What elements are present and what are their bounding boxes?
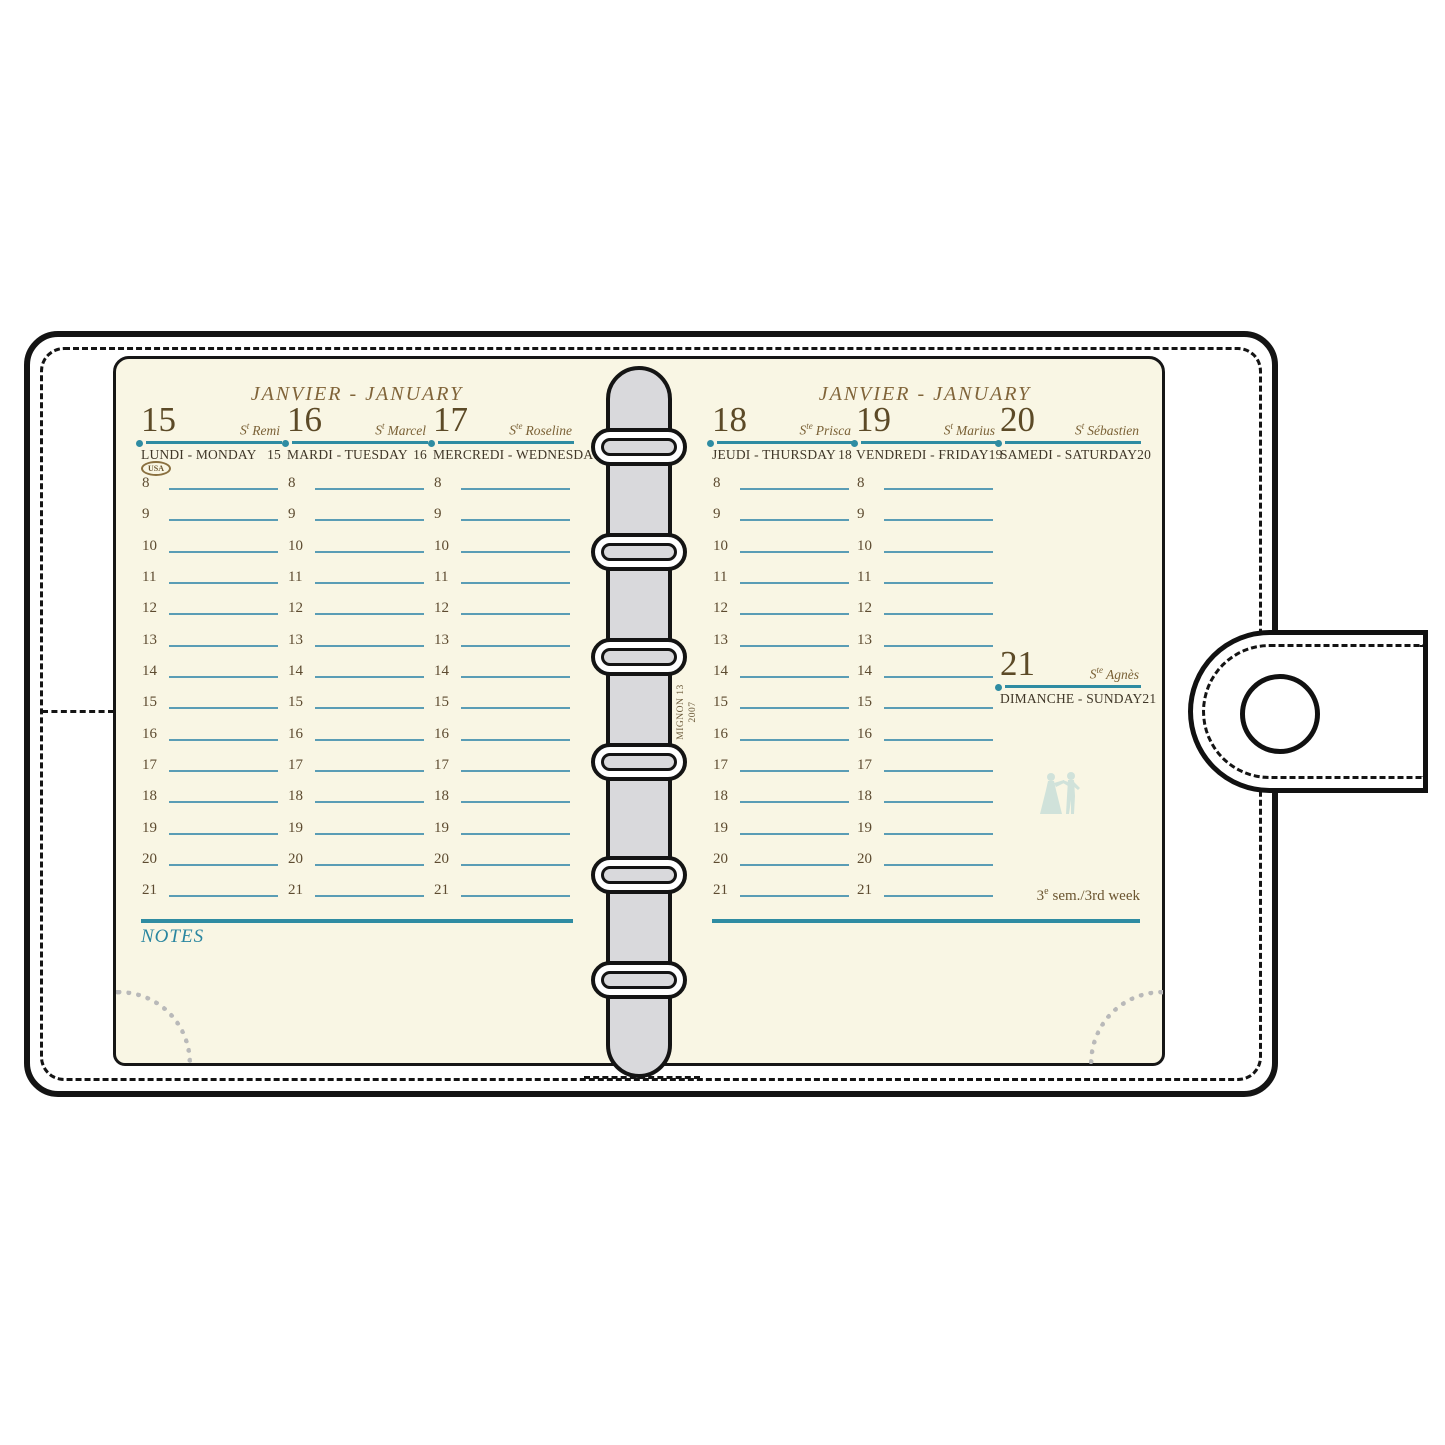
hour-line — [461, 551, 570, 553]
hour-row: 18 — [141, 788, 281, 805]
hour-line — [884, 895, 993, 897]
hour-label: 10 — [288, 538, 303, 555]
hour-row: 13 — [287, 632, 427, 649]
day-rule — [995, 683, 1141, 690]
hour-label: 17 — [288, 757, 303, 774]
hour-row: 11 — [287, 569, 427, 586]
hour-row: 18 — [433, 788, 573, 805]
hour-label: 15 — [713, 694, 728, 711]
saint-text: Marcel — [388, 423, 426, 438]
hour-line — [884, 551, 993, 553]
saint-prefix: S — [1075, 423, 1082, 438]
hour-line — [740, 676, 849, 678]
hour-label: 11 — [713, 569, 727, 586]
hour-label: 20 — [142, 851, 157, 868]
hour-row: 21 — [712, 882, 852, 899]
hour-row: 13 — [712, 632, 852, 649]
hour-line — [461, 613, 570, 615]
hour-label: 20 — [288, 851, 303, 868]
hour-line — [461, 488, 570, 490]
day-number: 20 — [1000, 402, 1035, 437]
hour-line — [169, 801, 278, 803]
saint-text: Roseline — [526, 423, 573, 438]
hour-row: 20 — [856, 851, 996, 868]
hour-label: 11 — [857, 569, 871, 586]
hour-row: 14 — [856, 663, 996, 680]
hour-label: 20 — [713, 851, 728, 868]
weekday-label: DIMANCHE - SUNDAY — [1000, 691, 1142, 707]
hour-label: 14 — [857, 663, 872, 680]
hour-line — [461, 770, 570, 772]
hour-row: 15 — [287, 694, 427, 711]
hour-row: 10 — [856, 538, 996, 555]
hour-line — [461, 519, 570, 521]
saint-name: SteRoseline — [509, 421, 572, 439]
hour-line — [461, 582, 570, 584]
hour-row: 10 — [712, 538, 852, 555]
saint-prefix: S — [240, 423, 247, 438]
hour-line — [315, 739, 424, 741]
hour-row: 17 — [712, 757, 852, 774]
cover-stitching-over-spine — [584, 1076, 700, 1079]
day-number: 15 — [141, 402, 176, 437]
hour-label: 21 — [857, 882, 872, 899]
hour-row: 19 — [856, 820, 996, 837]
hour-row: 9 — [856, 506, 996, 523]
hour-line — [315, 645, 424, 647]
saint-sup: t — [1082, 421, 1085, 431]
day-rule-dot — [428, 440, 435, 447]
day-column-19: 19StMariusVENDREDI - FRIDAY19 — [856, 406, 996, 486]
hour-row: 15 — [141, 694, 281, 711]
weekday-label-row: JEUDI - THURSDAY18 — [712, 447, 852, 463]
hour-row: 16 — [287, 726, 427, 743]
hour-label: 9 — [434, 506, 442, 523]
hour-label: 17 — [142, 757, 157, 774]
hour-row: 13 — [856, 632, 996, 649]
hour-label: 10 — [434, 538, 449, 555]
hour-label: 16 — [713, 726, 728, 743]
hour-line — [169, 833, 278, 835]
hour-label: 17 — [713, 757, 728, 774]
hour-line — [169, 551, 278, 553]
saint-name: SteAgnès — [1090, 665, 1139, 683]
hour-label: 19 — [857, 820, 872, 837]
weekday-date: 15 — [267, 447, 281, 463]
hour-label: 14 — [142, 663, 157, 680]
hour-line — [740, 551, 849, 553]
hour-row: 21 — [856, 882, 996, 899]
hour-label: 15 — [857, 694, 872, 711]
hour-label: 10 — [857, 538, 872, 555]
hour-row: 21 — [287, 882, 427, 899]
hour-label: 15 — [288, 694, 303, 711]
hour-row: 15 — [712, 694, 852, 711]
hour-label: 13 — [142, 632, 157, 649]
day-rule-dot — [282, 440, 289, 447]
hour-row: 9 — [433, 506, 573, 523]
saint-name: StMarius — [944, 421, 995, 439]
hour-line — [169, 488, 278, 490]
hour-line — [461, 707, 570, 709]
hour-line — [740, 864, 849, 866]
saint-text: Agnès — [1106, 667, 1139, 682]
hour-line — [461, 864, 570, 866]
saint-name: StSébastien — [1075, 421, 1139, 439]
weekday-label-row: MARDI - TUESDAY16 — [287, 447, 427, 463]
weekday-label-row: VENDREDI - FRIDAY19 — [856, 447, 996, 463]
hour-label: 12 — [857, 600, 872, 617]
hour-row: 21 — [141, 882, 281, 899]
hour-line — [461, 895, 570, 897]
hour-row: 8 — [856, 475, 996, 492]
hour-row: 11 — [712, 569, 852, 586]
weekday-label-row: SAMEDI - SATURDAY20 — [1000, 447, 1140, 463]
hour-label: 12 — [434, 600, 449, 617]
hour-row: 17 — [287, 757, 427, 774]
hour-label: 13 — [288, 632, 303, 649]
weekday-label: VENDREDI - FRIDAY — [856, 447, 989, 463]
day-column-18: 18StePriscaJEUDI - THURSDAY18 — [712, 406, 852, 486]
hour-line — [740, 770, 849, 772]
day-column-17: 17SteRoselineMERCREDI - WEDNESDAY17 — [433, 406, 573, 486]
hour-line — [740, 801, 849, 803]
hour-line — [740, 488, 849, 490]
saint-sup: t — [950, 421, 953, 431]
hour-label: 18 — [288, 788, 303, 805]
hour-row: 20 — [141, 851, 281, 868]
saint-sup: t — [247, 421, 250, 431]
hour-label: 14 — [434, 663, 449, 680]
hour-label: 18 — [857, 788, 872, 805]
hour-label: 16 — [857, 726, 872, 743]
hour-row: 17 — [856, 757, 996, 774]
couple-watermark-icon — [1038, 770, 1090, 820]
hour-row: 16 — [433, 726, 573, 743]
month-title-left: JANVIER - JANUARY — [141, 383, 573, 406]
hour-label: 11 — [288, 569, 302, 586]
hour-line — [740, 519, 849, 521]
weekday-date: 20 — [1137, 447, 1151, 463]
day-rule-line — [438, 441, 574, 444]
hour-row: 15 — [856, 694, 996, 711]
hour-line — [740, 645, 849, 647]
saint-sup: te — [1097, 665, 1104, 675]
hour-row: 10 — [433, 538, 573, 555]
hour-row: 14 — [141, 663, 281, 680]
binder-ring-slot — [601, 648, 677, 666]
saint-text: Sébastien — [1087, 423, 1139, 438]
hour-row: 16 — [141, 726, 281, 743]
hour-label: 14 — [713, 663, 728, 680]
hour-line — [315, 770, 424, 772]
hour-line — [315, 551, 424, 553]
day-rule — [136, 439, 282, 446]
hour-row: 12 — [141, 600, 281, 617]
saint-name: StMarcel — [375, 421, 426, 439]
snap-button — [1240, 674, 1320, 754]
hour-label: 18 — [142, 788, 157, 805]
hour-line — [884, 707, 993, 709]
hour-line — [315, 582, 424, 584]
saint-prefix: S — [509, 423, 516, 438]
hour-row: 8 — [433, 475, 573, 492]
binder-ring-slot — [601, 543, 677, 561]
hour-row: 9 — [712, 506, 852, 523]
hour-row: 18 — [856, 788, 996, 805]
day-rule-line — [717, 441, 853, 444]
day-number: 19 — [856, 402, 891, 437]
hour-row: 13 — [141, 632, 281, 649]
hour-label: 19 — [713, 820, 728, 837]
hour-row: 20 — [712, 851, 852, 868]
hour-row: 8 — [141, 475, 281, 492]
hour-label: 9 — [288, 506, 296, 523]
hour-label: 8 — [434, 475, 442, 492]
hour-label: 8 — [857, 475, 865, 492]
hour-row: 20 — [433, 851, 573, 868]
hour-line — [884, 739, 993, 741]
binder-ring-slot — [601, 753, 677, 771]
hour-line — [315, 613, 424, 615]
day-number: 17 — [433, 402, 468, 437]
hour-line — [315, 707, 424, 709]
hour-line — [169, 864, 278, 866]
day-rule-line — [1005, 685, 1141, 688]
page-bottom-rule-right — [712, 919, 1140, 923]
hour-label: 19 — [288, 820, 303, 837]
day-rule — [995, 439, 1141, 446]
hour-row: 14 — [712, 663, 852, 680]
hour-label: 9 — [857, 506, 865, 523]
day-rule — [282, 439, 428, 446]
saint-text: Prisca — [816, 423, 851, 438]
hour-line — [169, 519, 278, 521]
saint-sup: te — [516, 421, 523, 431]
hour-row: 21 — [433, 882, 573, 899]
hour-line — [884, 833, 993, 835]
hour-row: 12 — [712, 600, 852, 617]
weekday-label: JEUDI - THURSDAY — [712, 447, 836, 463]
corner-pocket-stitch-left — [116, 986, 194, 1064]
hour-line — [884, 582, 993, 584]
spine-edition-label: MIGNON 13 2007 — [676, 684, 700, 739]
hour-row: 19 — [141, 820, 281, 837]
hour-line — [740, 739, 849, 741]
hour-line — [461, 833, 570, 835]
day-column-21: 21SteAgnèsDIMANCHE - SUNDAY21 — [1000, 650, 1140, 730]
hour-row: 17 — [433, 757, 573, 774]
hour-label: 17 — [857, 757, 872, 774]
weekday-label-row: MERCREDI - WEDNESDAY17 — [433, 447, 573, 463]
hour-line — [169, 582, 278, 584]
hour-row: 20 — [287, 851, 427, 868]
hour-line — [315, 833, 424, 835]
hour-line — [884, 801, 993, 803]
hour-line — [740, 895, 849, 897]
hour-row: 11 — [856, 569, 996, 586]
hour-row: 12 — [287, 600, 427, 617]
hour-label: 19 — [434, 820, 449, 837]
day-number: 18 — [712, 402, 747, 437]
hour-row: 8 — [712, 475, 852, 492]
saint-name: StRemi — [240, 421, 280, 439]
hour-label: 10 — [142, 538, 157, 555]
day-rule — [707, 439, 853, 446]
hour-label: 15 — [434, 694, 449, 711]
weekday-label: MARDI - TUESDAY — [287, 447, 408, 463]
hour-row: 19 — [433, 820, 573, 837]
hour-row: 15 — [433, 694, 573, 711]
hour-line — [740, 613, 849, 615]
hour-line — [169, 770, 278, 772]
hour-line — [169, 613, 278, 615]
day-number: 21 — [1000, 646, 1035, 681]
hour-line — [169, 645, 278, 647]
hour-row: 10 — [141, 538, 281, 555]
hour-row: 19 — [712, 820, 852, 837]
hour-line — [315, 895, 424, 897]
hour-label: 21 — [288, 882, 303, 899]
day-column-15: 15StRemiLUNDI - MONDAY15USA — [141, 406, 281, 486]
organizer-illustration: JANVIER - JANUARY JANVIER - JANUARY NOTE… — [0, 0, 1445, 1445]
day-rule-line — [1005, 441, 1141, 444]
hour-label: 9 — [142, 506, 150, 523]
day-rule-line — [292, 441, 428, 444]
hour-label: 15 — [142, 694, 157, 711]
saint-text: Marius — [956, 423, 995, 438]
binder-ring-slot — [601, 438, 677, 456]
hour-row: 10 — [287, 538, 427, 555]
weekday-date: 16 — [413, 447, 427, 463]
hour-label: 20 — [434, 851, 449, 868]
day-rule — [851, 439, 997, 446]
weekday-date: 21 — [1142, 691, 1156, 707]
hour-line — [740, 707, 849, 709]
saint-text: Remi — [252, 423, 280, 438]
hour-row: 17 — [141, 757, 281, 774]
month-title-right: JANVIER - JANUARY — [710, 383, 1140, 406]
cover-left-seam — [42, 710, 114, 713]
hour-label: 16 — [142, 726, 157, 743]
day-rule-dot — [995, 684, 1002, 691]
day-rule-line — [861, 441, 997, 444]
hour-label: 10 — [713, 538, 728, 555]
saint-sup: t — [382, 421, 385, 431]
hour-label: 13 — [434, 632, 449, 649]
hour-row: 18 — [287, 788, 427, 805]
hour-line — [884, 645, 993, 647]
hour-label: 18 — [434, 788, 449, 805]
hour-row: 16 — [856, 726, 996, 743]
hour-label: 20 — [857, 851, 872, 868]
hour-line — [315, 488, 424, 490]
hour-label: 9 — [713, 506, 721, 523]
hour-row: 11 — [433, 569, 573, 586]
hour-row: 8 — [287, 475, 427, 492]
hour-label: 16 — [288, 726, 303, 743]
weekday-label: SAMEDI - SATURDAY — [1000, 447, 1137, 463]
hour-line — [169, 707, 278, 709]
hour-line — [740, 833, 849, 835]
hour-line — [461, 645, 570, 647]
saint-sup: te — [806, 421, 813, 431]
hour-line — [884, 488, 993, 490]
hour-label: 12 — [288, 600, 303, 617]
hour-label: 13 — [713, 632, 728, 649]
saint-name: StePrisca — [800, 421, 852, 439]
hour-label: 11 — [434, 569, 448, 586]
binder-ring-slot — [601, 971, 677, 989]
hour-label: 16 — [434, 726, 449, 743]
hour-line — [884, 519, 993, 521]
hour-line — [315, 676, 424, 678]
day-rule-line — [146, 441, 282, 444]
day-column-20: 20StSébastienSAMEDI - SATURDAY20 — [1000, 406, 1140, 486]
hour-label: 18 — [713, 788, 728, 805]
hour-label: 8 — [288, 475, 296, 492]
hour-label: 21 — [713, 882, 728, 899]
day-column-16: 16StMarcelMARDI - TUESDAY16 — [287, 406, 427, 486]
hour-line — [315, 801, 424, 803]
hour-line — [740, 582, 849, 584]
hour-row: 12 — [433, 600, 573, 617]
usa-badge: USA — [141, 461, 171, 476]
notes-label: NOTES — [141, 926, 204, 948]
hour-label: 21 — [434, 882, 449, 899]
hour-line — [884, 864, 993, 866]
hour-row: 9 — [141, 506, 281, 523]
hour-label: 8 — [142, 475, 150, 492]
day-rule-dot — [136, 440, 143, 447]
day-rule-dot — [851, 440, 858, 447]
hour-row: 19 — [287, 820, 427, 837]
corner-pocket-stitch-right — [1087, 986, 1163, 1064]
week-number-label: 3esem./3rd week — [1000, 886, 1140, 905]
day-rule — [428, 439, 574, 446]
hour-line — [461, 676, 570, 678]
weekday-date: 18 — [838, 447, 852, 463]
hour-label: 8 — [713, 475, 721, 492]
day-number: 16 — [287, 402, 322, 437]
hour-row: 11 — [141, 569, 281, 586]
day-rule-dot — [995, 440, 1002, 447]
hour-label: 19 — [142, 820, 157, 837]
hour-label: 11 — [142, 569, 156, 586]
hour-line — [884, 676, 993, 678]
page-bottom-rule-left — [141, 919, 573, 923]
hour-label: 13 — [857, 632, 872, 649]
hour-row: 9 — [287, 506, 427, 523]
hour-line — [169, 739, 278, 741]
hour-line — [315, 519, 424, 521]
hour-line — [884, 770, 993, 772]
saint-prefix: S — [1090, 667, 1097, 682]
hour-row: 13 — [433, 632, 573, 649]
hour-row: 14 — [287, 663, 427, 680]
hour-line — [461, 739, 570, 741]
binder-ring-slot — [601, 866, 677, 884]
hour-line — [884, 613, 993, 615]
weekday-label: MERCREDI - WEDNESDAY — [433, 447, 602, 463]
hour-line — [315, 864, 424, 866]
hour-label: 17 — [434, 757, 449, 774]
day-rule-dot — [707, 440, 714, 447]
hour-line — [169, 895, 278, 897]
hour-row: 18 — [712, 788, 852, 805]
saint-prefix: S — [375, 423, 382, 438]
hour-label: 12 — [713, 600, 728, 617]
